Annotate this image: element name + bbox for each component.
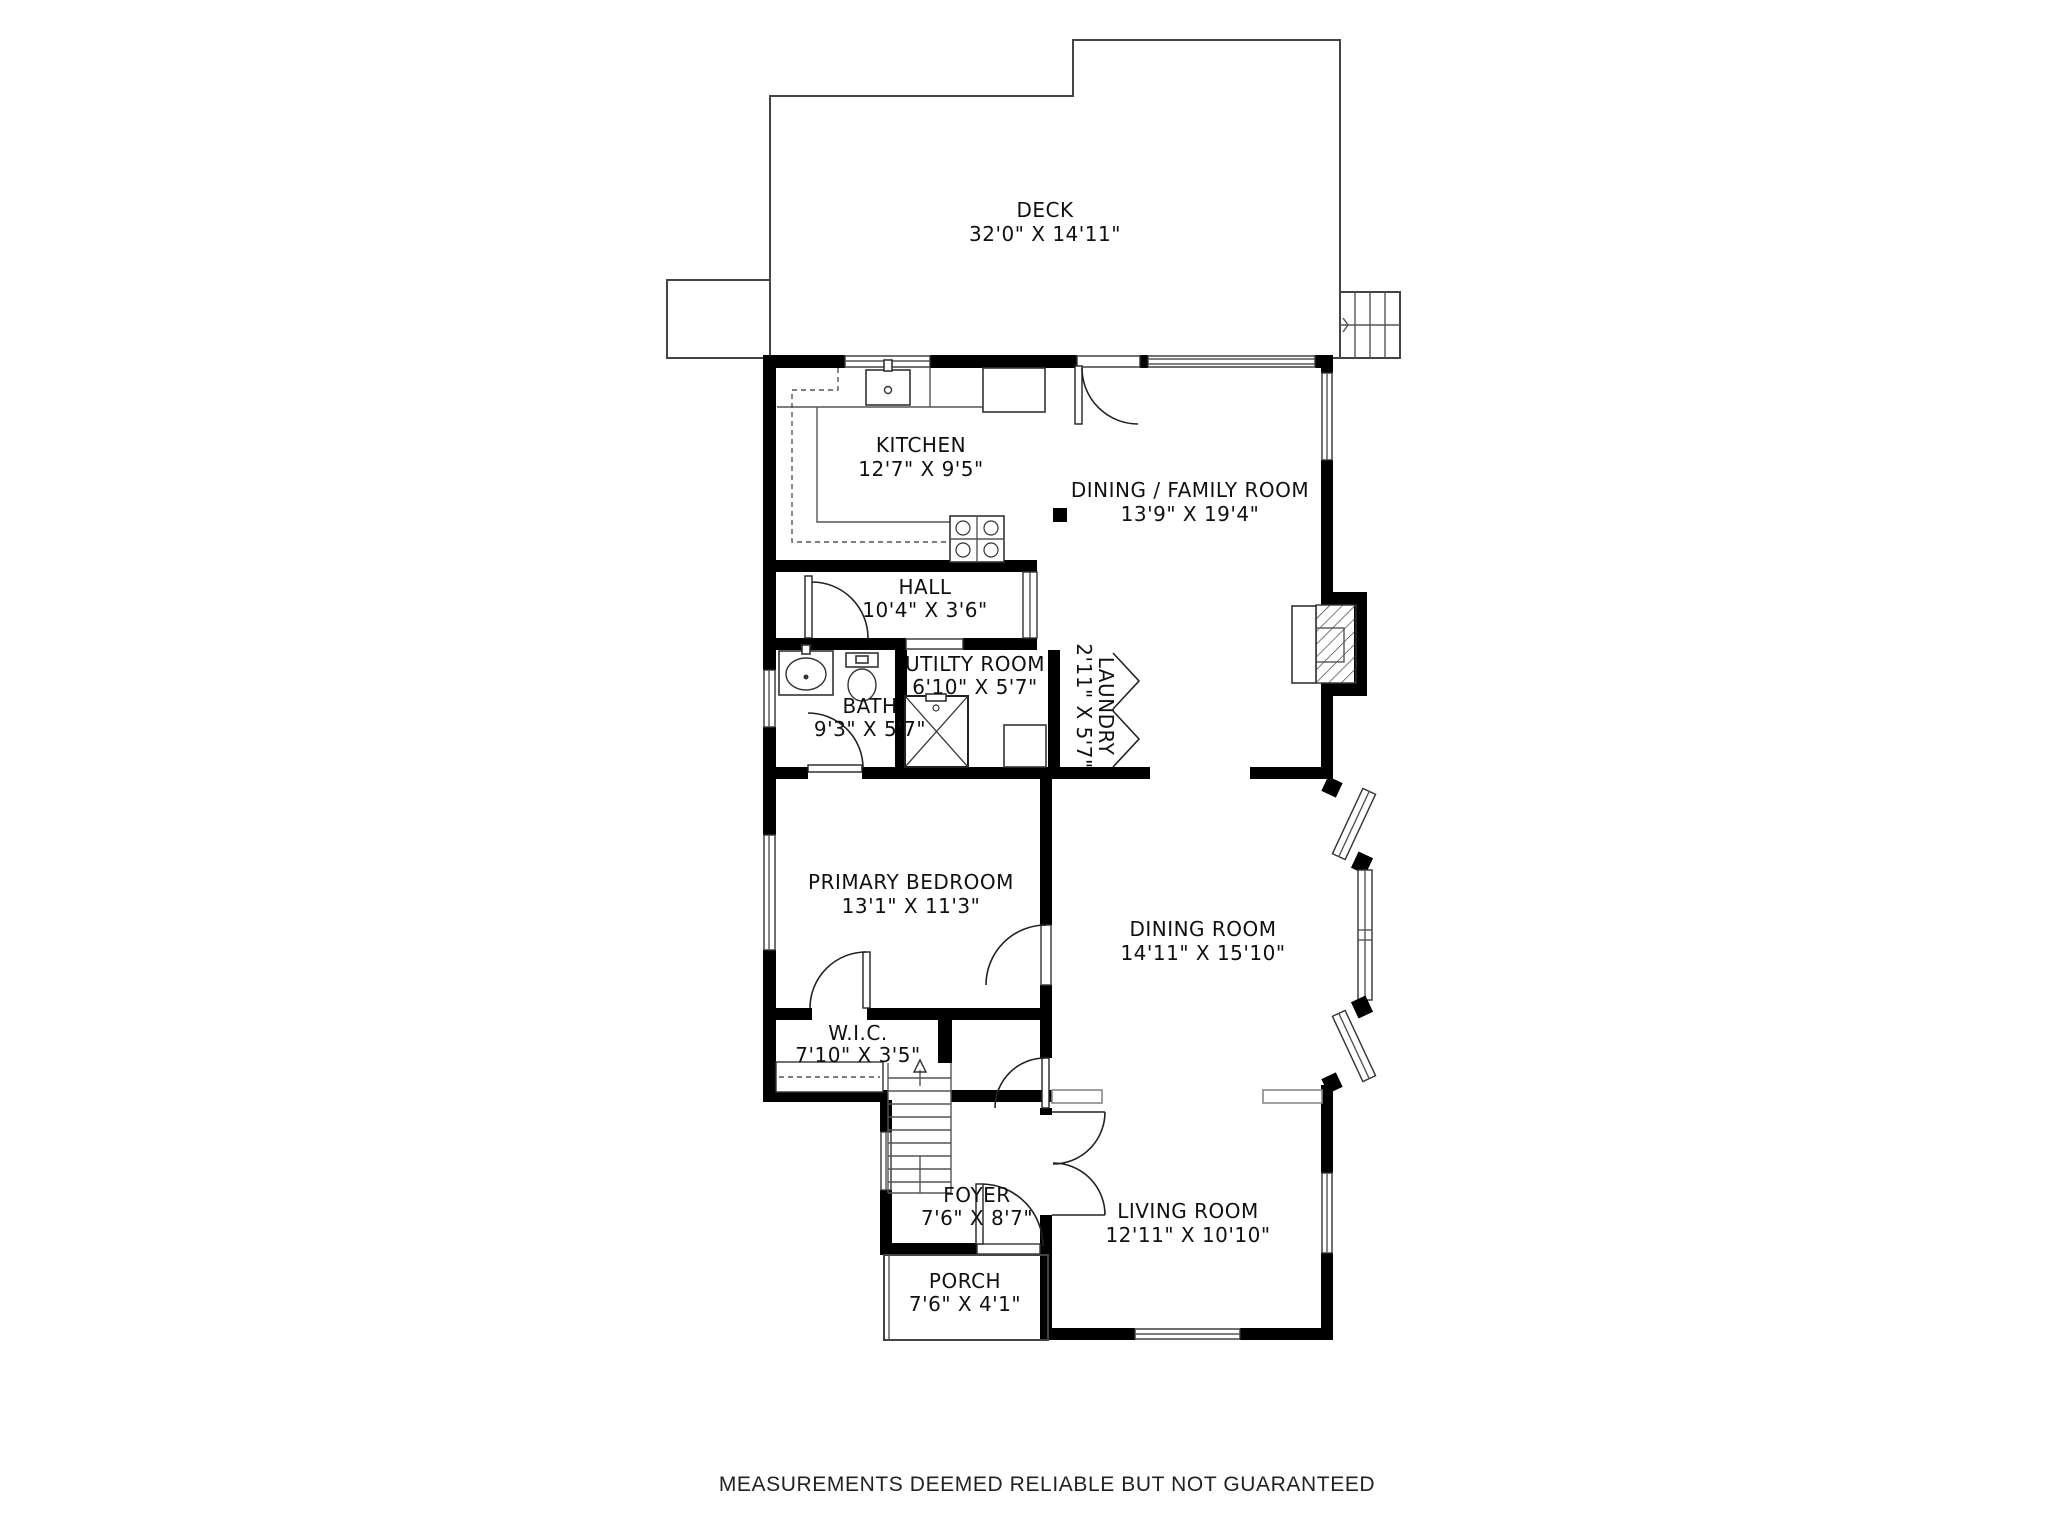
deck-door [1075, 356, 1140, 424]
stove [950, 516, 1004, 562]
room-label-wic: W.I.C.7'10" X 3'5" [795, 1021, 920, 1067]
svg-text:LIVING ROOM: LIVING ROOM [1117, 1199, 1259, 1223]
refrigerator [983, 368, 1045, 412]
floor-plan-drawing: DECK32'0" X 14'11" KITCHEN12'7" X 9'5" D… [0, 0, 2048, 1536]
bath-window [764, 670, 775, 727]
svg-text:9'3" X 5'7": 9'3" X 5'7" [814, 717, 926, 741]
svg-text:13'1" X 11'3": 13'1" X 11'3" [842, 894, 981, 918]
fireplace-hearth [1292, 606, 1316, 683]
room-label-porch: PORCH7'6" X 4'1" [909, 1269, 1021, 1316]
svg-text:13'9" X 19'4": 13'9" X 19'4" [1121, 502, 1260, 526]
room-label-deck: DECK32'0" X 14'11" [969, 198, 1121, 246]
utility-opening [906, 639, 963, 649]
room-label-dining-room: DINING ROOM14'11" X 15'10" [1120, 917, 1285, 965]
svg-text:DECK: DECK [1016, 198, 1074, 222]
bath-sink [779, 645, 833, 695]
svg-text:DINING / FAMILY ROOM: DINING / FAMILY ROOM [1071, 478, 1309, 502]
bedroom-door [810, 952, 870, 1008]
room-label-living-room: LIVING ROOM12'11" X 10'10" [1105, 1199, 1270, 1247]
bay-window [1321, 776, 1375, 1093]
svg-text:BATH: BATH [842, 694, 897, 718]
floor-plan-page: DECK32'0" X 14'11" KITCHEN12'7" X 9'5" D… [0, 0, 2048, 1536]
room-label-kitchen: KITCHEN12'7" X 9'5" [858, 433, 983, 481]
dining-family-top-window [1148, 356, 1315, 367]
room-label-hall: HALL10'4" X 3'6" [862, 575, 987, 622]
fireplace [1292, 592, 1367, 696]
svg-text:12'11" X 10'10": 12'11" X 10'10" [1105, 1223, 1270, 1247]
svg-text:6'10" X 5'7": 6'10" X 5'7" [912, 675, 1037, 699]
svg-text:PORCH: PORCH [929, 1269, 1001, 1293]
svg-text:W.I.C.: W.I.C. [828, 1021, 887, 1045]
cased-opening-header [1263, 1090, 1322, 1103]
room-label-laundry: LAUNDRY2'11" X 5'7" [1072, 643, 1118, 768]
svg-text:12'7" X 9'5": 12'7" X 9'5" [858, 457, 983, 481]
room-label-dining-family: DINING / FAMILY ROOM13'9" X 19'4" [1071, 478, 1309, 526]
svg-text:7'6" X 8'7": 7'6" X 8'7" [921, 1206, 1033, 1230]
svg-text:HALL: HALL [898, 575, 951, 599]
svg-text:2'11" X 5'7": 2'11" X 5'7" [1072, 643, 1096, 768]
bedroom-window [764, 835, 775, 950]
deck-stairs [1340, 292, 1400, 358]
room-label-foyer: FOYER7'6" X 8'7" [921, 1183, 1033, 1230]
living-bottom-window [1135, 1329, 1240, 1339]
kitchen-post [1053, 508, 1067, 522]
bedroom-dining-door [986, 925, 1051, 985]
hall-east-opening [1023, 572, 1037, 638]
svg-text:7'6" X 4'1": 7'6" X 4'1" [909, 1292, 1021, 1316]
disclaimer-text: MEASUREMENTS DEEMED RELIABLE BUT NOT GUA… [719, 1473, 1375, 1496]
svg-text:DINING ROOM: DINING ROOM [1129, 917, 1276, 941]
french-doors [1052, 1090, 1105, 1215]
svg-text:PRIMARY BEDROOM: PRIMARY BEDROOM [808, 870, 1014, 894]
svg-text:KITCHEN: KITCHEN [876, 433, 966, 457]
washer-dryer [1004, 725, 1046, 767]
living-right-window [1322, 1173, 1332, 1253]
svg-text:UTILTY ROOM: UTILTY ROOM [905, 652, 1045, 676]
svg-text:7'10" X 3'5": 7'10" X 3'5" [795, 1043, 920, 1067]
svg-text:LAUNDRY: LAUNDRY [1094, 657, 1118, 756]
dining-family-right-window [1322, 373, 1332, 460]
room-label-primary-bedroom: PRIMARY BEDROOM13'1" X 11'3" [808, 870, 1014, 918]
fireplace-hatch [1316, 605, 1356, 683]
room-label-utility: UTILTY ROOM6'10" X 5'7" [905, 652, 1045, 699]
svg-text:32'0" X 14'11": 32'0" X 14'11" [969, 222, 1121, 246]
foyer-stairs [888, 1060, 951, 1193]
svg-text:10'4" X 3'6": 10'4" X 3'6" [862, 598, 987, 622]
svg-text:FOYER: FOYER [943, 1183, 1010, 1207]
hall-door [805, 576, 868, 638]
svg-text:14'11" X 15'10": 14'11" X 15'10" [1120, 941, 1285, 965]
